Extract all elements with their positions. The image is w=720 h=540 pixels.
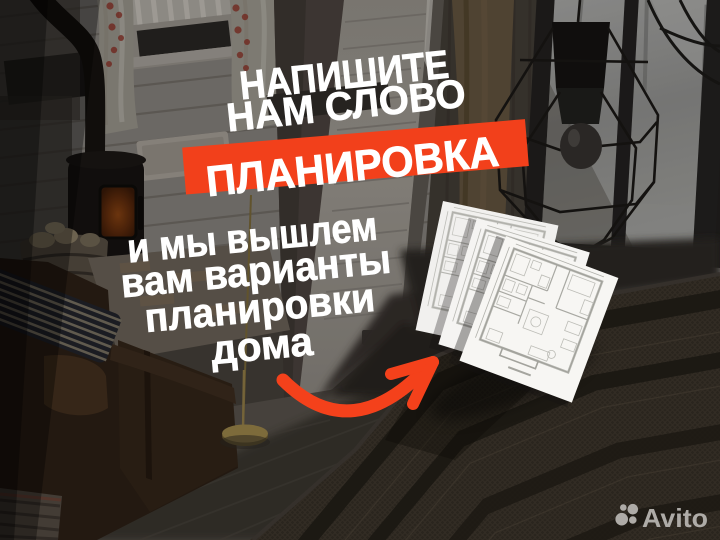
svg-text:дома: дома: [209, 318, 316, 373]
svg-text:Avito: Avito: [642, 503, 708, 533]
